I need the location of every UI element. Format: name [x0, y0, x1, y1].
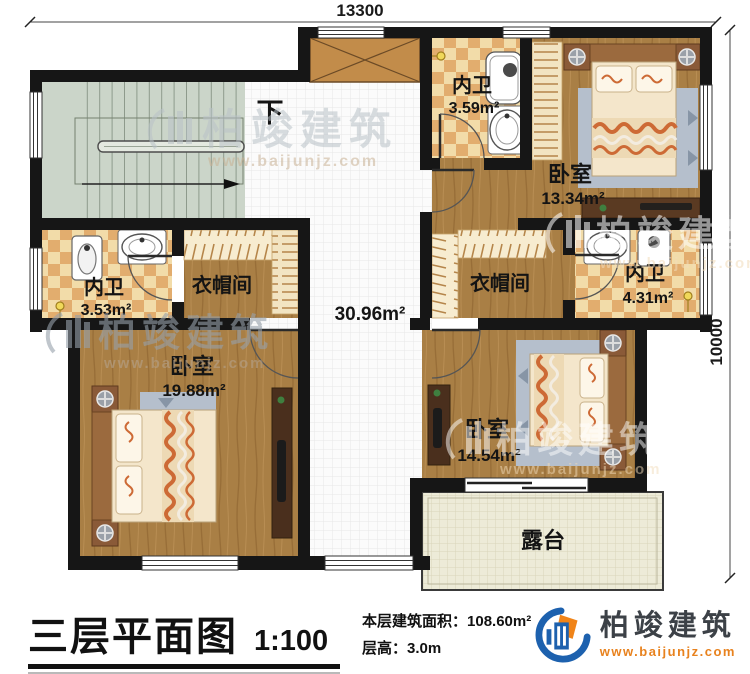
- room-area: 3.59m²: [449, 100, 500, 117]
- brand-name: 柏竣建筑: [600, 611, 736, 641]
- title-block-footer: 三层平面图 1:100 本层建筑面积：108.60m² 层高：3.0m 柏竣建筑…: [0, 598, 750, 669]
- brand-logo-icon: [534, 606, 592, 664]
- svg-text:柏竣建筑: 柏竣建筑: [98, 313, 274, 355]
- cabinet-void-box: [310, 38, 420, 82]
- window: [142, 556, 238, 570]
- room-area: 19.88m²: [162, 381, 226, 400]
- dresser: [428, 385, 450, 465]
- window: [325, 556, 413, 570]
- sliding-door: [465, 478, 588, 492]
- room-area: 30.96m²: [335, 304, 406, 325]
- svg-text:柏竣建筑: 柏竣建筑: [202, 106, 398, 153]
- brand-url: www.baijunjz.com: [600, 644, 736, 659]
- title-underline: [28, 664, 340, 669]
- pillow: [116, 414, 142, 462]
- building-area-value: 108.60m²: [467, 613, 531, 630]
- floor-height-value: 3.0m: [407, 640, 441, 657]
- dimension-width-label: 13300: [336, 1, 383, 20]
- room-name: 内卫: [84, 275, 124, 299]
- room-area: 13.34m²: [541, 189, 605, 208]
- sink: [118, 230, 166, 264]
- plan-title: 三层平面图: [28, 604, 238, 662]
- window: [700, 85, 712, 170]
- window: [30, 92, 42, 158]
- svg-text:柏竣建筑: 柏竣建筑: [596, 213, 750, 254]
- pillow: [116, 466, 142, 514]
- dimension-top: 13300: [25, 1, 721, 27]
- svg-text:www.baijunjz.com: www.baijunjz.com: [599, 255, 750, 272]
- room-name: 卧室: [548, 162, 592, 187]
- squat-toilet: [72, 236, 102, 280]
- window: [503, 27, 550, 38]
- plan-scale: 1:100: [254, 625, 328, 658]
- plan-title-block: 三层平面图 1:100: [28, 604, 340, 674]
- room-name: 露台: [521, 528, 565, 553]
- tv-cabinet: [272, 388, 292, 538]
- wardrobe: [532, 42, 562, 160]
- dimension-height-label: 10000: [707, 318, 726, 365]
- room-name: 衣帽间: [192, 273, 252, 297]
- window: [318, 27, 384, 38]
- svg-text:柏竣建筑: 柏竣建筑: [496, 419, 660, 460]
- room-name: 衣帽间: [470, 271, 530, 295]
- room-name: 内卫: [452, 73, 492, 97]
- svg-text:www.baijunjz.com: www.baijunjz.com: [207, 153, 378, 170]
- floor-height-label: 层高：: [362, 640, 407, 657]
- bed-lower-left: [92, 386, 216, 546]
- svg-text:www.baijunjz.com: www.baijunjz.com: [499, 461, 661, 478]
- floor-plan-drawing: 13300 10000 下 内卫 3.59m² 卧室 13.34m² 内卫 3.…: [0, 0, 750, 600]
- plan-specs: 本层建筑面积：108.60m² 层高：3.0m: [362, 608, 531, 662]
- pillow: [596, 66, 632, 92]
- building-area-label: 本层建筑面积：: [362, 613, 467, 630]
- brand-logo-block: 柏竣建筑 www.baijunjz.com: [534, 606, 736, 664]
- pillow: [636, 66, 672, 92]
- room-area: 4.31m²: [623, 290, 674, 307]
- svg-text:www.baijunjz.com: www.baijunjz.com: [103, 355, 265, 372]
- window: [30, 248, 42, 310]
- floor-plan-canvas: 13300 10000 下 内卫 3.59m² 卧室 13.34m² 内卫 3.…: [0, 0, 750, 605]
